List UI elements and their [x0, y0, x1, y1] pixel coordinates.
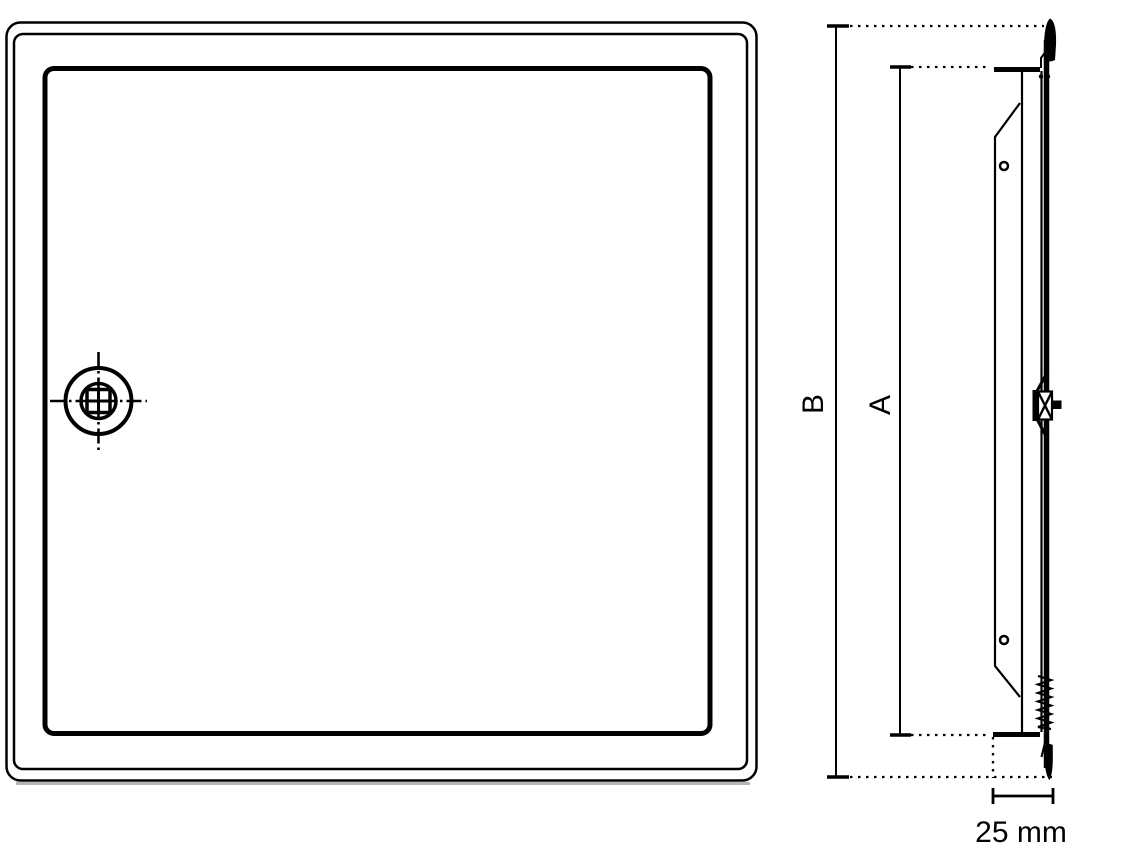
side-view: B A [797, 19, 1067, 850]
door-panel-front [45, 69, 710, 734]
door-top-hook [1044, 19, 1056, 62]
door-bottom-tip [1044, 744, 1053, 780]
dimension-b: B [797, 26, 1052, 777]
front-view [7, 23, 757, 784]
screw-hole-icon-bottom [1000, 636, 1008, 644]
latch-stub [1052, 401, 1062, 410]
dimension-a-label: A [864, 395, 897, 415]
dimension-b-label: B [797, 394, 830, 414]
flange-rivet-left [1039, 74, 1043, 78]
screw-hole-icon-top [1000, 162, 1008, 170]
dimension-a: A [864, 67, 991, 735]
mounting-bracket [995, 103, 1020, 697]
technical-drawing-access-panel: B A [0, 0, 1136, 852]
drawing-canvas: B A [0, 0, 1136, 852]
dimension-25mm-label: 25 mm [975, 816, 1067, 849]
panel-side-profile [993, 19, 1062, 781]
dimension-25mm: 25 mm [975, 737, 1067, 849]
